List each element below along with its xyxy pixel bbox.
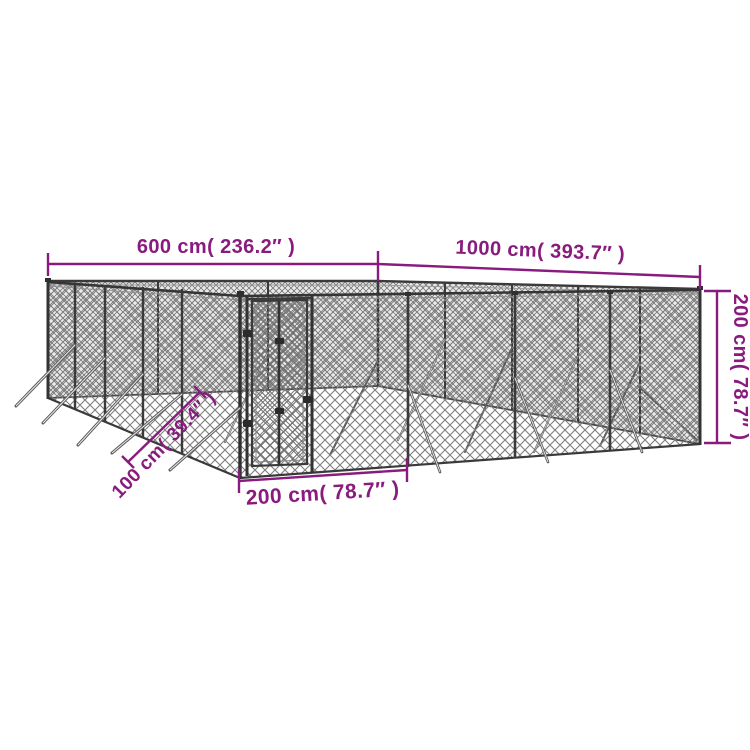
label-height: 200 cm( 78.7″ ): [729, 294, 750, 441]
label-gate-section: 200 cm( 78.7″ ): [245, 477, 400, 509]
dimension-height: [704, 291, 731, 443]
kennel-dimension-diagram: 600 cm( 236.2″ ) 1000 cm( 393.7″ ) 200 c…: [0, 0, 750, 750]
near-walls: [45, 278, 703, 479]
kennel-gate: [243, 295, 313, 476]
label-back-right-length: 1000 cm( 393.7″ ): [455, 237, 626, 266]
kennel-illustration: 600 cm( 236.2″ ) 1000 cm( 393.7″ ) 200 c…: [0, 0, 750, 750]
label-back-left-width: 600 cm( 236.2″ ): [137, 236, 295, 258]
